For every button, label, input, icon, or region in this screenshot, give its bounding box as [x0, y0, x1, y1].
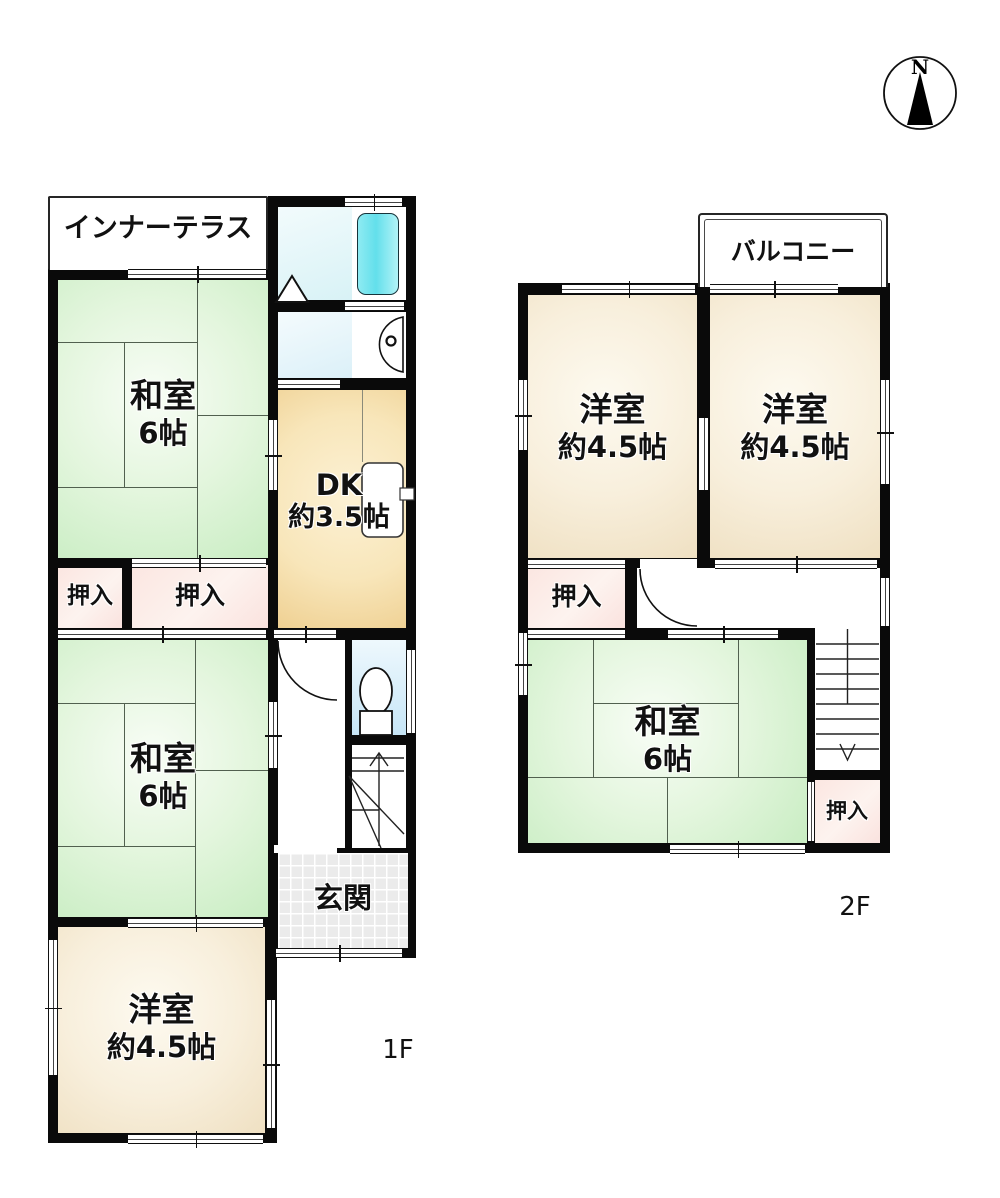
- f1-youshitsu-label: 洋室 約4.5帖: [58, 991, 265, 1064]
- window: [880, 380, 890, 484]
- room-name: 和室: [58, 740, 268, 779]
- sliding-door: [668, 629, 778, 639]
- room-name: 洋室: [58, 991, 265, 1030]
- toilet-room: [352, 640, 406, 735]
- window: [48, 940, 58, 1075]
- room-size: 約4.5帖: [710, 430, 880, 464]
- room-name: 和室: [58, 377, 268, 416]
- floor1-label: 1F: [368, 1035, 428, 1066]
- f1-washitsu-bottom-label: 和室 6帖: [58, 740, 268, 813]
- floor-plan: N インナーテラス 和室 6帖 DK 約3.5帖 押入 押入 和室 6帖 玄関 …: [0, 0, 1000, 1198]
- sliding-door: [345, 301, 404, 311]
- genkan-label: 玄関: [278, 881, 408, 915]
- window: [128, 269, 266, 279]
- compass-n-label: N: [911, 55, 929, 79]
- f2-oshiire-top-label: 押入: [528, 582, 625, 612]
- room-size: 6帖: [58, 416, 268, 450]
- room-size: 6帖: [58, 779, 268, 813]
- window: [562, 284, 695, 294]
- sliding-door: [528, 559, 625, 569]
- bathroom-floor: [278, 207, 352, 300]
- window: [128, 1134, 263, 1144]
- sliding-door: [274, 629, 336, 639]
- f1-oshiire-left-label: 押入: [58, 583, 122, 610]
- f2-hall: [637, 568, 880, 628]
- washroom-floor: [278, 312, 352, 378]
- room-name: DK: [272, 468, 406, 502]
- room-size: 6帖: [528, 742, 807, 776]
- f1-oshiire-right-label: 押入: [132, 581, 268, 611]
- room-size: 約3.5帖: [272, 502, 406, 534]
- floor2-label: 2F: [828, 892, 882, 923]
- f2-oshiire-bottom-label: 押入: [812, 799, 882, 824]
- window: [128, 918, 263, 928]
- f1-stairs-area: [352, 745, 406, 848]
- compass: N: [883, 50, 963, 136]
- room-name: 和室: [528, 703, 807, 742]
- window: [266, 1000, 276, 1128]
- room-size: 約4.5帖: [58, 1030, 265, 1064]
- inner-terrace-label: インナーテラス: [48, 213, 268, 245]
- window: [406, 650, 416, 733]
- f1-washitsu-top-label: 和室 6帖: [58, 377, 268, 450]
- door-opening: [640, 559, 697, 568]
- dk-label: DK 約3.5帖: [272, 468, 406, 534]
- entrance-door: [276, 948, 402, 958]
- room-name: 洋室: [528, 391, 697, 430]
- compass-needle: [907, 72, 933, 125]
- window: [670, 844, 805, 854]
- washbasin-niche: [352, 312, 406, 378]
- window: [345, 197, 402, 207]
- window: [518, 633, 528, 695]
- sliding-door: [132, 558, 266, 568]
- window: [518, 380, 528, 450]
- f2-stairs-area: [815, 628, 880, 770]
- window: [880, 578, 890, 626]
- sliding-door: [715, 559, 877, 569]
- compass-circle: [884, 57, 956, 129]
- window: [710, 284, 838, 294]
- sliding-door: [528, 629, 625, 639]
- f2-washitsu-label: 和室 6帖: [528, 703, 807, 776]
- f1-hallway: [278, 640, 345, 848]
- sliding-door: [278, 379, 340, 389]
- room-name: 洋室: [710, 391, 880, 430]
- f2-youshitsu-left-label: 洋室 約4.5帖: [528, 391, 697, 464]
- bathtub: [357, 213, 399, 295]
- room-size: 約4.5帖: [528, 430, 697, 464]
- room-divider-door: [698, 418, 709, 490]
- opening: [274, 845, 337, 853]
- sliding-door: [58, 629, 266, 639]
- balcony-label: バルコニー: [698, 237, 888, 267]
- f2-youshitsu-right-label: 洋室 約4.5帖: [710, 391, 880, 464]
- sliding-door: [268, 702, 278, 768]
